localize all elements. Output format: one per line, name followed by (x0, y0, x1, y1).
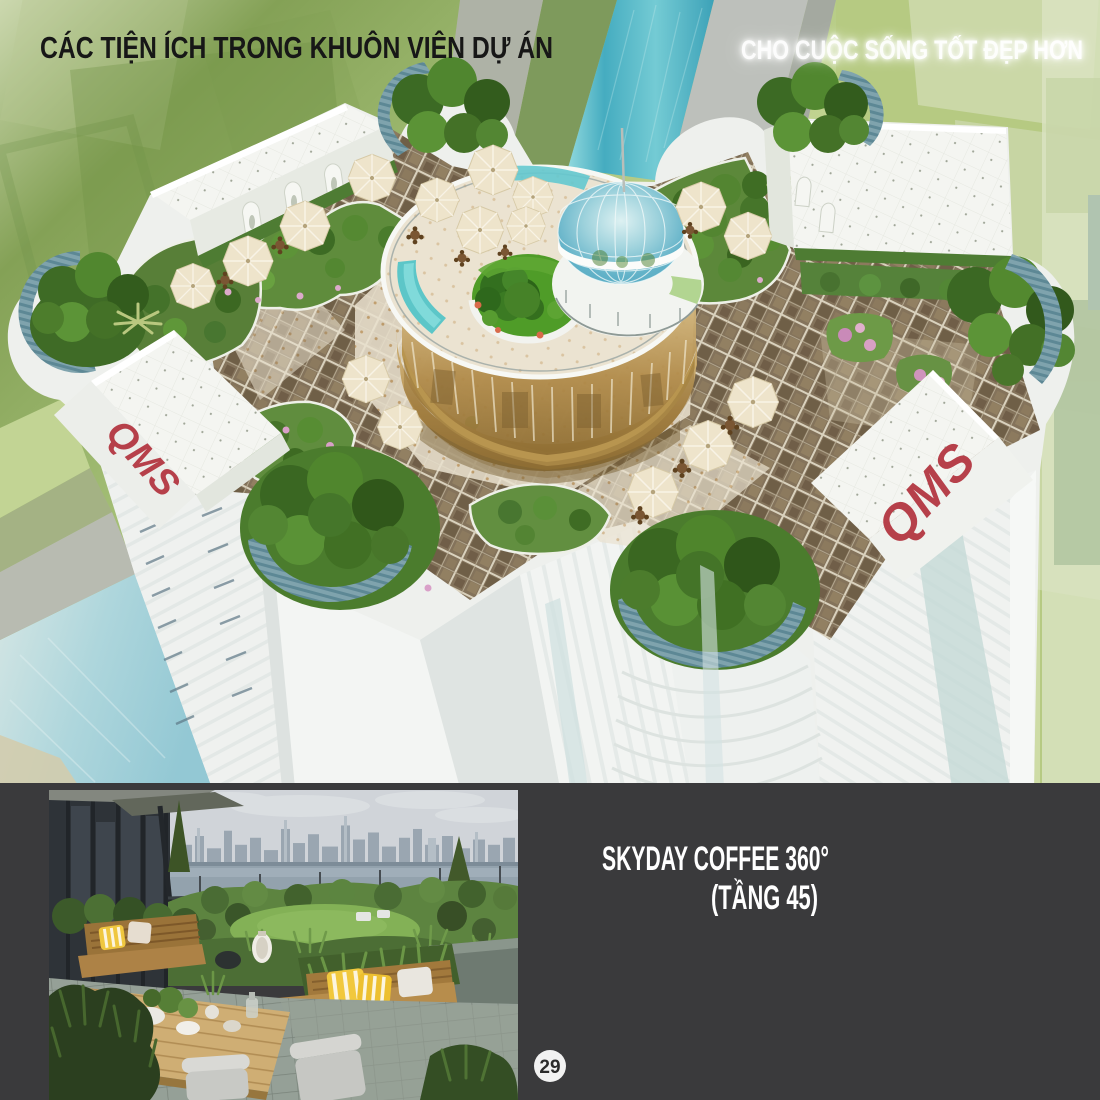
svg-text:CÁC TIỆN ÍCH TRONG KHUÔN VIÊN: CÁC TIỆN ÍCH TRONG KHUÔN VIÊN DỰ ÁN (40, 29, 553, 65)
svg-text:CHO CUỘC SỐNG TỐT ĐẸP HƠN: CHO CUỘC SỐNG TỐT ĐẸP HƠN (741, 33, 1083, 65)
svg-text:29: 29 (539, 1057, 560, 1078)
svg-text:SKYDAY COFFEE 360°: SKYDAY COFFEE 360° (602, 840, 829, 878)
svg-text:(TẦNG 45): (TẦNG 45) (711, 879, 818, 917)
